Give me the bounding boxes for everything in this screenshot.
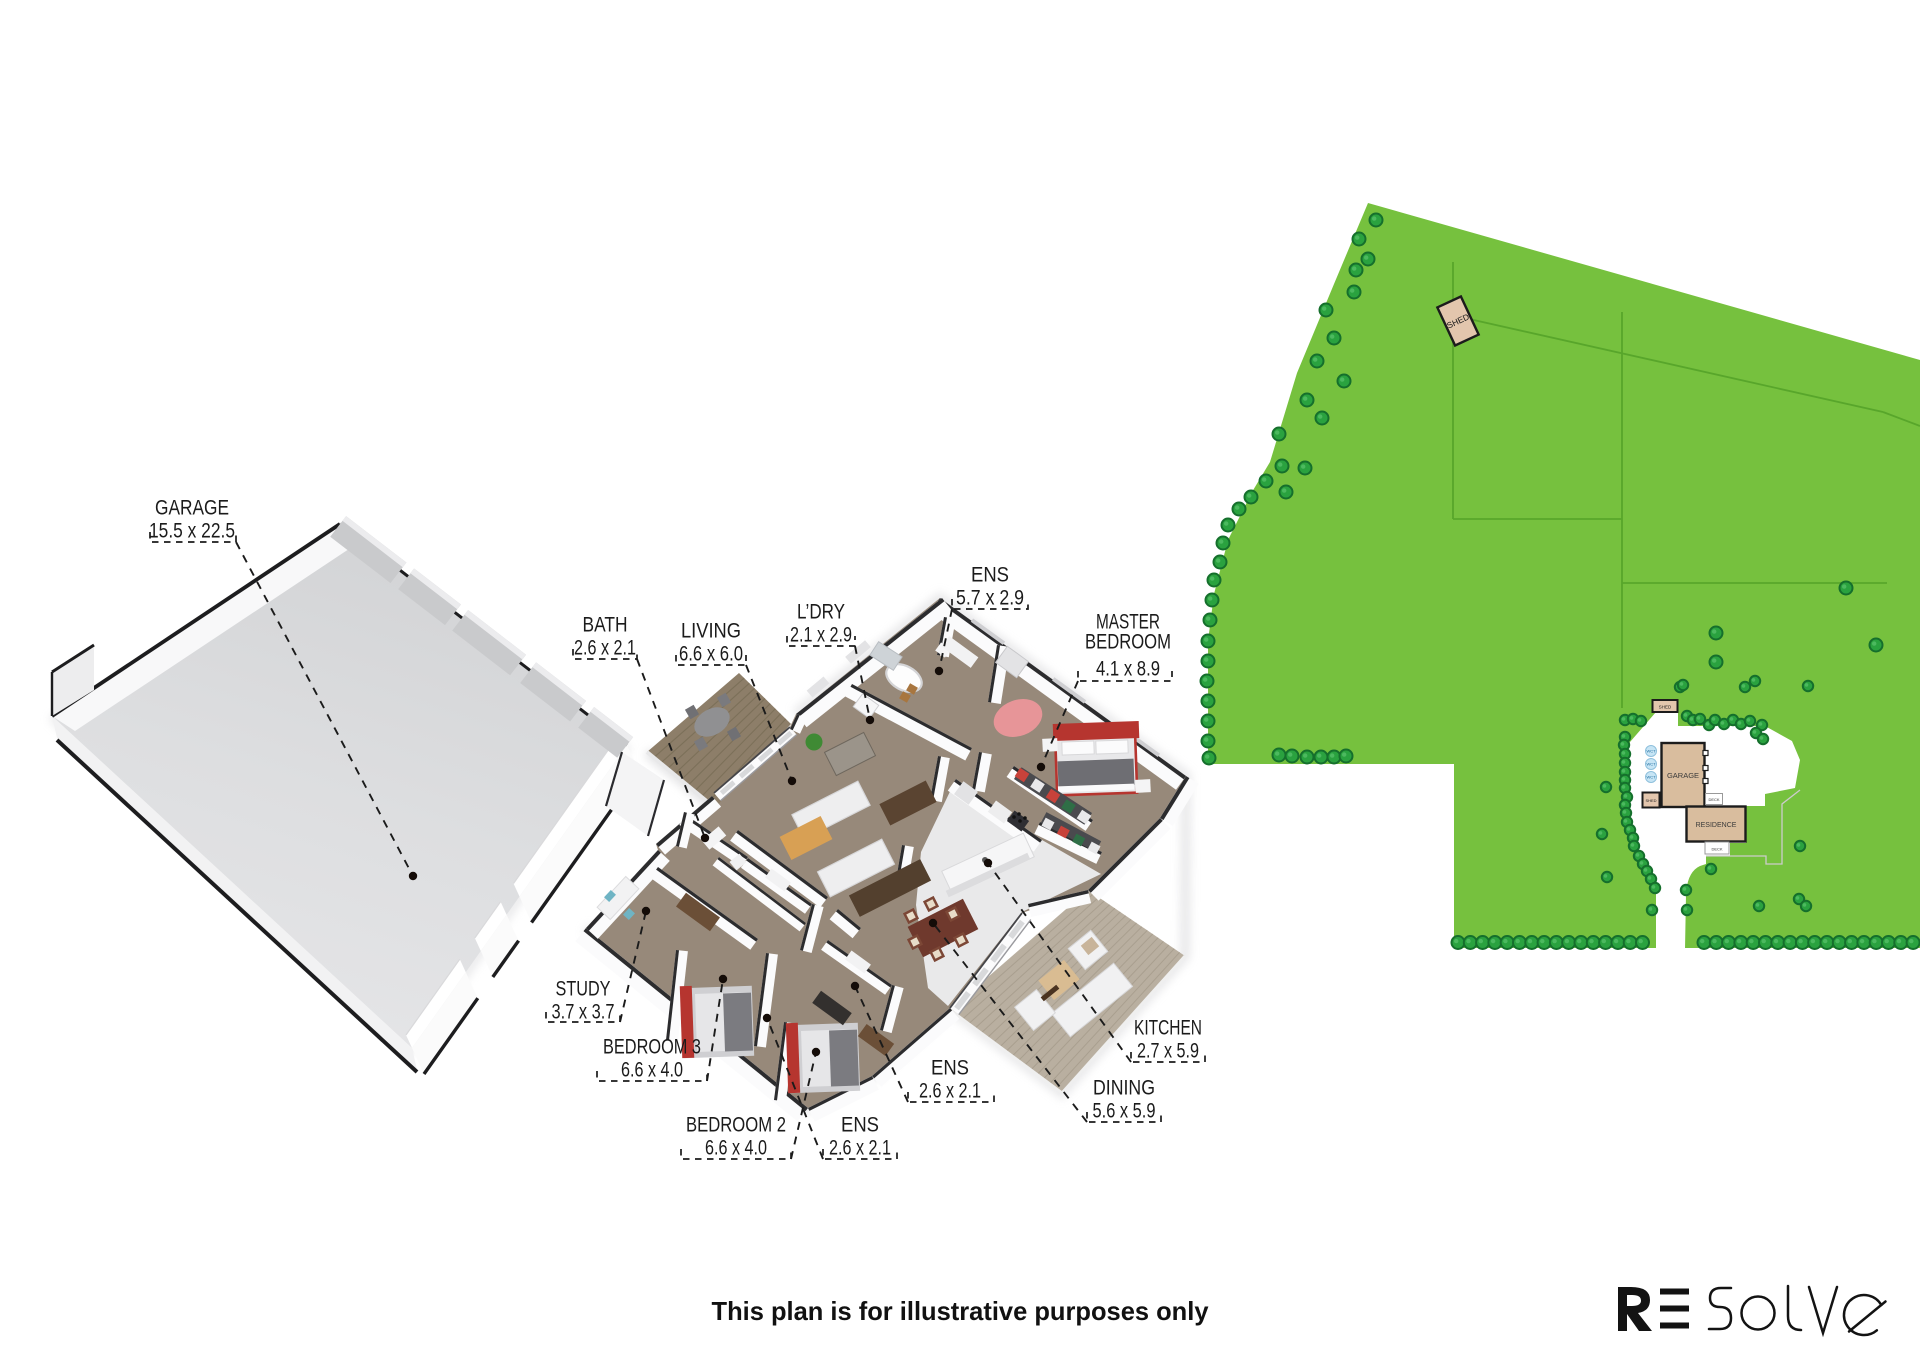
svg-text:This plan is for illustrative: This plan is for illustrative purposes o… xyxy=(712,1296,1210,1326)
svg-text:DECK: DECK xyxy=(1711,847,1722,852)
svg-text:KITCHEN: KITCHEN xyxy=(1134,1016,1202,1039)
svg-text:5.7 x 2.9: 5.7 x 2.9 xyxy=(956,586,1024,609)
svg-text:ENS: ENS xyxy=(931,1056,969,1079)
svg-text:4.1 x 8.9: 4.1 x 8.9 xyxy=(1096,657,1160,680)
svg-text:6.6 x 4.0: 6.6 x 4.0 xyxy=(621,1058,683,1081)
svg-text:3.7 x 3.7: 3.7 x 3.7 xyxy=(552,1000,615,1023)
svg-text:2.6 x 2.1: 2.6 x 2.1 xyxy=(829,1136,891,1159)
svg-text:2.7 x 5.9: 2.7 x 5.9 xyxy=(1137,1039,1199,1062)
svg-text:ENS: ENS xyxy=(841,1113,879,1136)
svg-text:DINING: DINING xyxy=(1093,1076,1155,1099)
svg-text:GARAGE: GARAGE xyxy=(1667,771,1699,780)
svg-text:BEDROOM 3: BEDROOM 3 xyxy=(603,1035,701,1058)
svg-text:6.6 x 6.0: 6.6 x 6.0 xyxy=(679,642,743,665)
svg-text:6.6 x 4.0: 6.6 x 4.0 xyxy=(705,1136,767,1159)
svg-text:GARAGE: GARAGE xyxy=(155,496,229,519)
svg-text:WCT: WCT xyxy=(1646,762,1656,767)
svg-text:15.5 x 22.5: 15.5 x 22.5 xyxy=(149,519,235,542)
svg-text:BATH: BATH xyxy=(583,613,628,636)
svg-text:DECK: DECK xyxy=(1708,797,1719,802)
svg-text:WCT: WCT xyxy=(1646,775,1656,780)
svg-text:STUDY: STUDY xyxy=(556,977,611,1000)
svg-text:RESIDENCE: RESIDENCE xyxy=(1696,822,1737,829)
svg-text:BEDROOM: BEDROOM xyxy=(1085,630,1171,653)
svg-text:LIVING: LIVING xyxy=(681,619,741,642)
svg-text:2.6 x 2.1: 2.6 x 2.1 xyxy=(919,1079,981,1102)
svg-text:2.1 x 2.9: 2.1 x 2.9 xyxy=(790,623,852,646)
svg-text:SHED: SHED xyxy=(1659,705,1672,710)
svg-text:WCT: WCT xyxy=(1646,749,1656,754)
svg-text:L’DRY: L’DRY xyxy=(797,600,845,623)
svg-text:SHED: SHED xyxy=(1645,798,1656,803)
svg-text:2.6 x 2.1: 2.6 x 2.1 xyxy=(574,636,636,659)
svg-text:5.6 x 5.9: 5.6 x 5.9 xyxy=(1093,1099,1156,1122)
svg-text:ENS: ENS xyxy=(971,563,1009,586)
svg-text:BEDROOM 2: BEDROOM 2 xyxy=(686,1113,786,1136)
